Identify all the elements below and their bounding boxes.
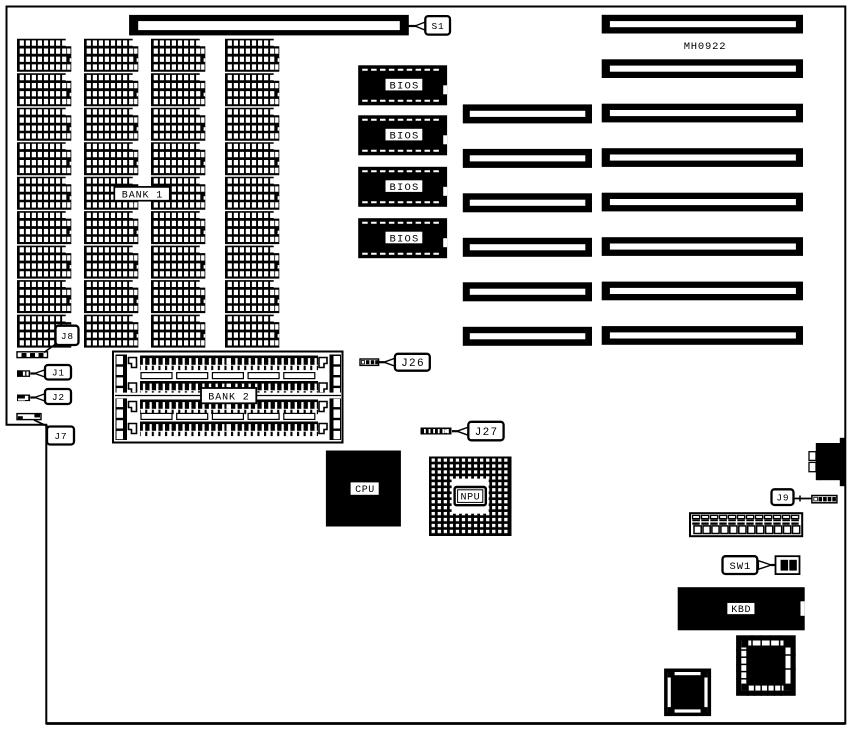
svg-text:J2: J2 <box>52 392 65 403</box>
svg-text:J26: J26 <box>401 358 425 370</box>
svg-text:J8: J8 <box>61 331 74 342</box>
svg-text:S1: S1 <box>431 21 444 32</box>
svg-text:CPU: CPU <box>355 485 375 496</box>
svg-text:J9: J9 <box>776 493 789 504</box>
svg-text:BANK 1: BANK 1 <box>122 190 163 201</box>
svg-text:J7: J7 <box>54 431 67 442</box>
svg-text:BANK 2: BANK 2 <box>208 392 249 403</box>
svg-text:J27: J27 <box>475 427 499 439</box>
svg-text:MH0922: MH0922 <box>684 41 727 53</box>
svg-text:NPU: NPU <box>460 493 480 504</box>
svg-text:KBD: KBD <box>731 605 751 616</box>
svg-text:J1: J1 <box>52 368 65 379</box>
svg-text:SW1: SW1 <box>729 561 751 573</box>
